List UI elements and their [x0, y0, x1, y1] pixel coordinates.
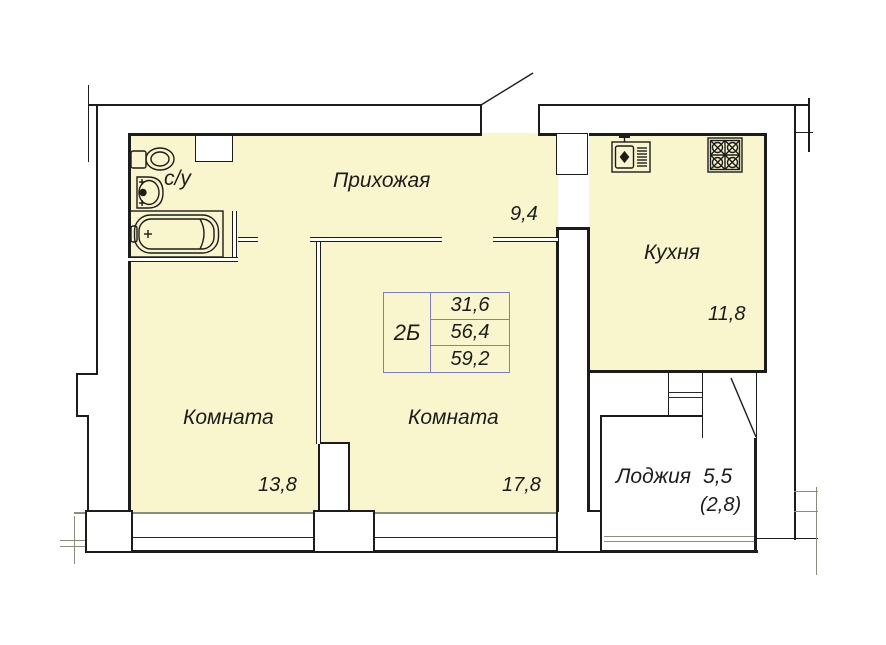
apartment-type-cell: 2Б	[384, 293, 431, 372]
balcony-door-swing-icon	[731, 378, 756, 437]
room-label-hallway: Прихожая	[333, 170, 430, 191]
stove-icon	[708, 138, 742, 172]
room-label-loggia: Лоджия 5,5	[616, 466, 732, 487]
floor-plan: 2Б 31,6 56,4 59,2 с/у Прихожая 9,4 Кухня…	[0, 0, 886, 645]
area-total: 59,2	[431, 346, 509, 372]
room-area-room-right: 17,8	[502, 475, 541, 495]
room-label-room-left: Комната	[183, 407, 274, 428]
area-usable: 56,4	[431, 320, 509, 347]
bathtub-icon	[130, 211, 223, 257]
room-label-room-right: Комната	[408, 407, 499, 428]
loggia-area: 5,5	[703, 466, 732, 487]
sink-icon	[137, 177, 163, 208]
loggia-label-text: Лоджия	[616, 466, 691, 487]
room-area-note-loggia: (2,8)	[700, 495, 741, 515]
room-label-kitchen: Кухня	[644, 242, 700, 263]
apartment-info-table: 2Б 31,6 56,4 59,2	[383, 292, 510, 373]
room-area-hallway: 9,4	[510, 204, 538, 224]
area-living: 31,6	[431, 293, 509, 320]
room-area-room-left: 13,8	[258, 475, 297, 495]
apartment-type: 2Б	[394, 320, 421, 346]
kitchen-sink-icon	[612, 137, 650, 173]
room-area-kitchen: 11,8	[708, 304, 745, 324]
entrance-door-swing-icon	[481, 73, 533, 105]
room-label-bathroom: с/у	[164, 168, 191, 189]
